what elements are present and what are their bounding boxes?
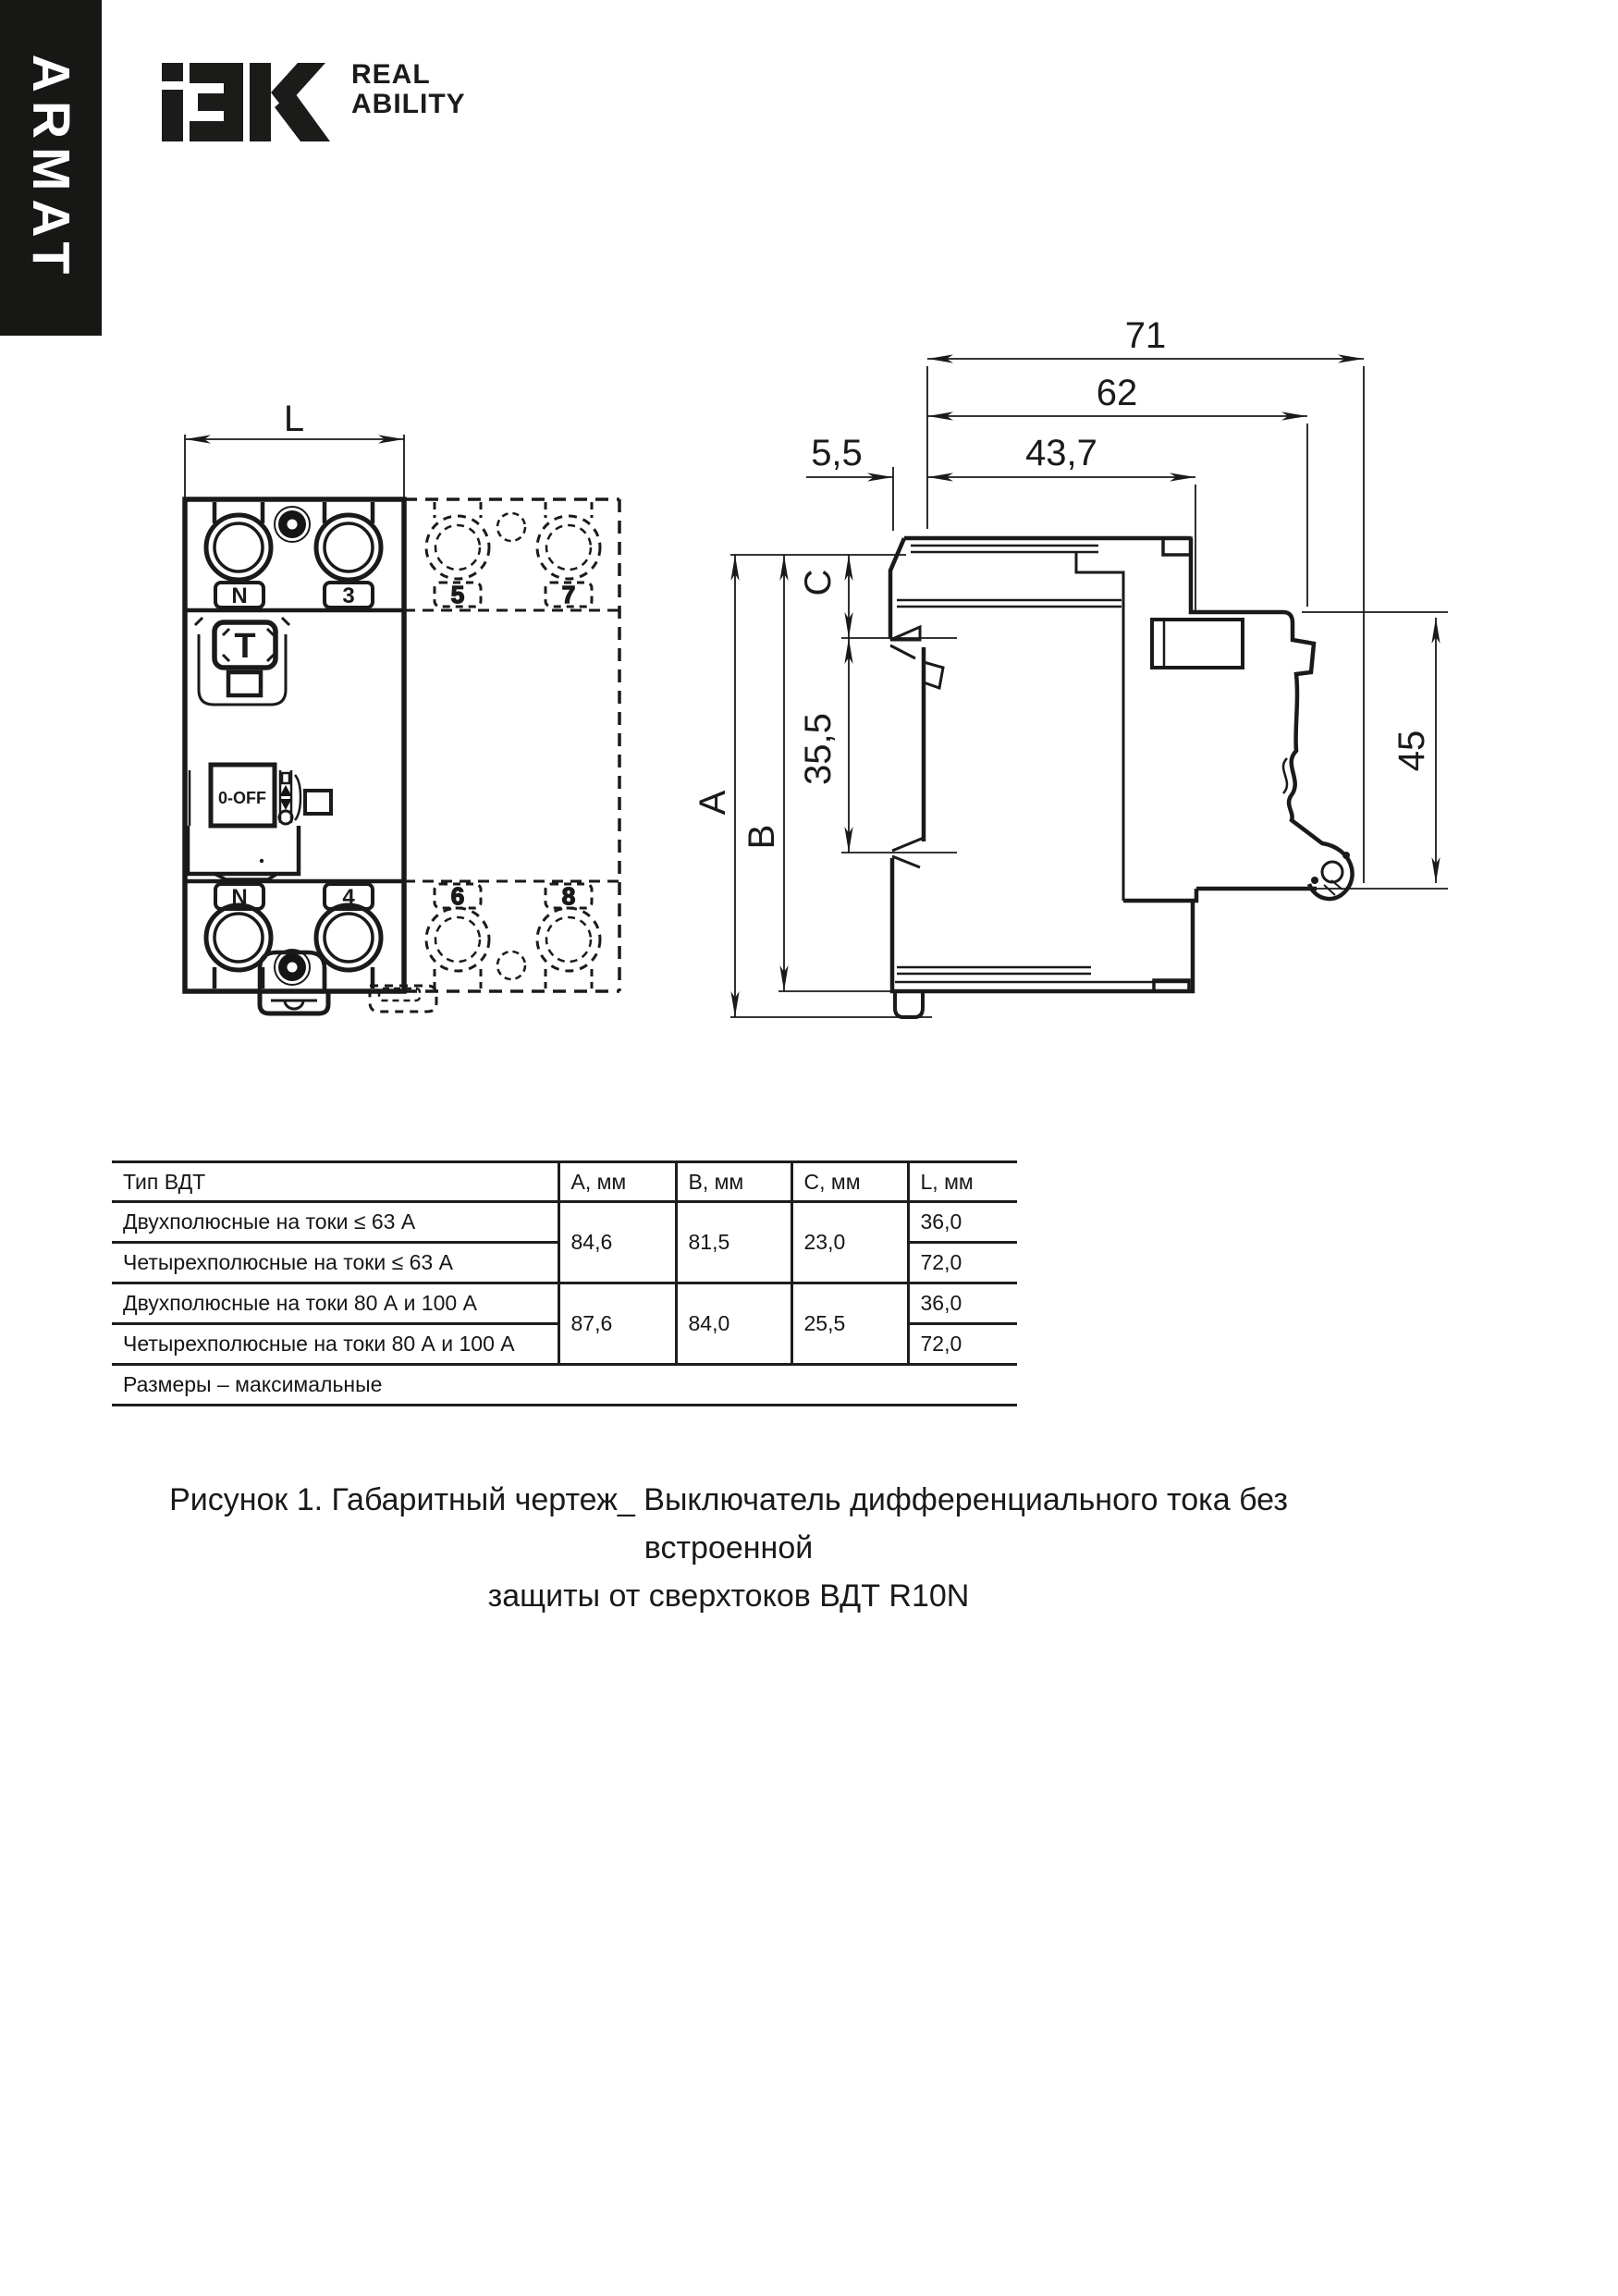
cell-l: 72,0 — [908, 1324, 1017, 1365]
table-header-a: A, мм — [558, 1162, 676, 1202]
cell-b: 84,0 — [676, 1283, 791, 1365]
dim-label-62: 62 — [1097, 373, 1138, 413]
cell-c: 25,5 — [791, 1283, 908, 1365]
side-profile — [890, 538, 1353, 1017]
dim-label-B: B — [742, 825, 782, 850]
cell-l: 36,0 — [908, 1202, 1017, 1243]
screw-top — [275, 507, 310, 542]
switch-label: 0-OFF — [218, 789, 266, 807]
dim-label-5-5: 5,5 — [811, 433, 863, 473]
datasheet-page: ARMAT REAL ABILITY — [0, 0, 1618, 2296]
dim-label-45: 45 — [1391, 731, 1432, 772]
table-header-type: Тип ВДТ — [112, 1162, 558, 1202]
table-note: Размеры – максимальные — [112, 1365, 1017, 1406]
terminal-label-5: 5 — [451, 581, 464, 608]
figure-caption-line2: защиты от сверхтоков ВДТ R10N — [155, 1572, 1302, 1620]
terminal-label-7: 7 — [562, 581, 575, 608]
cell-c: 23,0 — [791, 1202, 908, 1283]
terminal-label-n-top: N — [231, 583, 247, 608]
figure-caption: Рисунок 1. Габаритный чертеж_ Выключател… — [155, 1476, 1302, 1620]
dimensions-table: Тип ВДТ A, мм B, мм C, мм L, мм Двухполю… — [112, 1160, 1017, 1406]
table-header-l: L, мм — [908, 1162, 1017, 1202]
screw-bottom — [275, 950, 310, 985]
dim-label-C: C — [798, 570, 839, 596]
dimensional-drawing: N 3 5 7 T — [0, 0, 1618, 1156]
terminal-label-3: 3 — [342, 583, 354, 608]
row-type: Двухполюсные на токи ≤ 63 А — [112, 1202, 558, 1243]
cell-a: 84,6 — [558, 1202, 676, 1283]
dim-label-71: 71 — [1125, 315, 1167, 356]
table-header-c: C, мм — [791, 1162, 908, 1202]
cell-b: 81,5 — [676, 1202, 791, 1283]
dim-label-A: A — [693, 790, 733, 815]
dim-label-35-5: 35,5 — [798, 713, 839, 785]
terminal-label-6: 6 — [451, 882, 464, 910]
table-header-row: Тип ВДТ A, мм B, мм C, мм L, мм — [112, 1162, 1017, 1202]
test-button-label: T — [234, 627, 255, 666]
row-type: Четырехполюсные на токи ≤ 63 А — [112, 1243, 558, 1283]
cell-a: 87,6 — [558, 1283, 676, 1365]
dim-label-43-7: 43,7 — [1025, 433, 1097, 473]
cell-l: 72,0 — [908, 1243, 1017, 1283]
dim-width-L — [185, 435, 404, 497]
figure-caption-line1: Рисунок 1. Габаритный чертеж_ Выключател… — [155, 1476, 1302, 1572]
front-view-drawing: N 3 5 7 T — [185, 435, 619, 1013]
row-type: Двухполюсные на токи 80 А и 100 А — [112, 1283, 558, 1324]
table-row: Двухполюсные на токи ≤ 63 А 84,6 81,5 23… — [112, 1202, 1017, 1243]
cell-l: 36,0 — [908, 1283, 1017, 1324]
dim-label-L: L — [284, 399, 304, 439]
row-type: Четырехполюсные на токи 80 А и 100 А — [112, 1324, 558, 1365]
table-header-b: B, мм — [676, 1162, 791, 1202]
terminal-label-8: 8 — [562, 882, 575, 910]
table-note-row: Размеры – максимальные — [112, 1365, 1017, 1406]
din-clip-front — [260, 991, 328, 1013]
table-row: Двухполюсные на токи 80 А и 100 А 87,6 8… — [112, 1283, 1017, 1324]
